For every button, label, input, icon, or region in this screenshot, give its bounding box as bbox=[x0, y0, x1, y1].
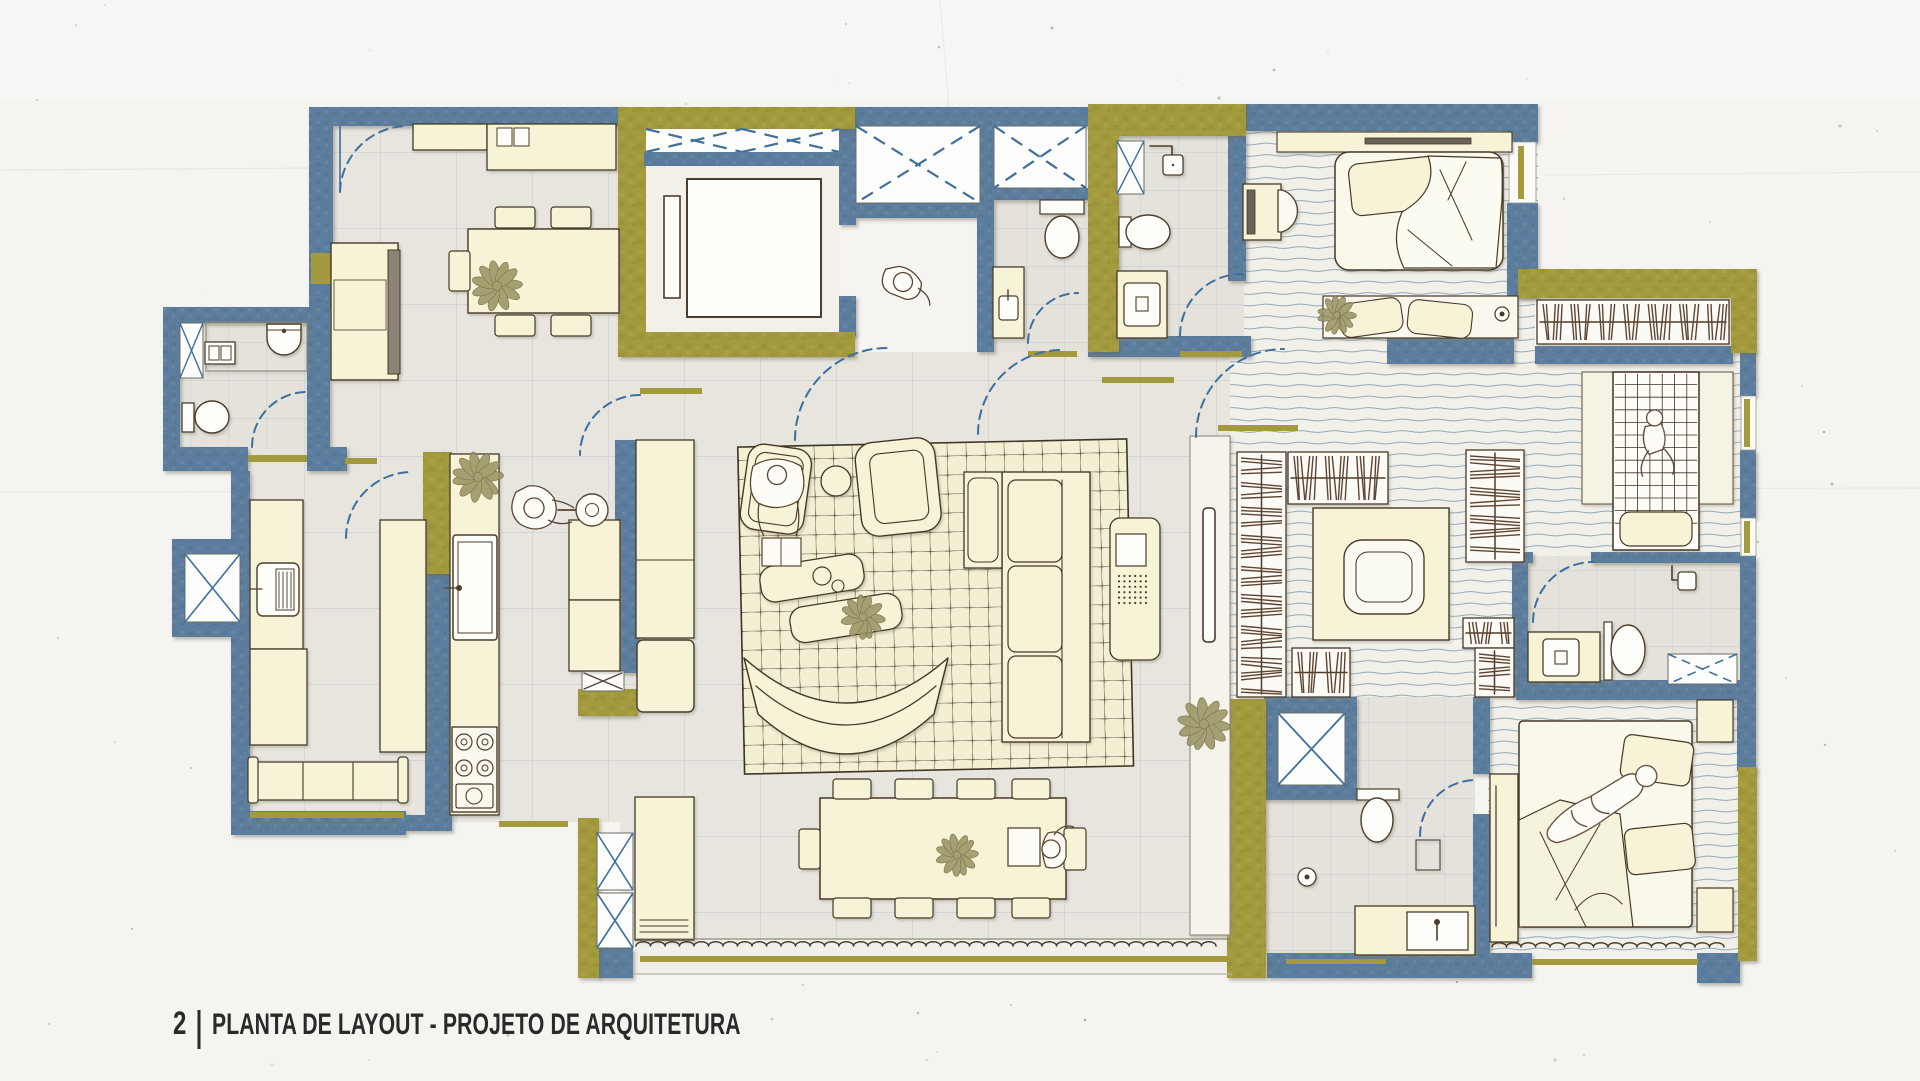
svg-text:PLANTA DE LAYOUT - PROJETO DE: PLANTA DE LAYOUT - PROJETO DE ARQUITETUR… bbox=[212, 1009, 741, 1041]
svg-text:2: 2 bbox=[173, 1005, 186, 1041]
